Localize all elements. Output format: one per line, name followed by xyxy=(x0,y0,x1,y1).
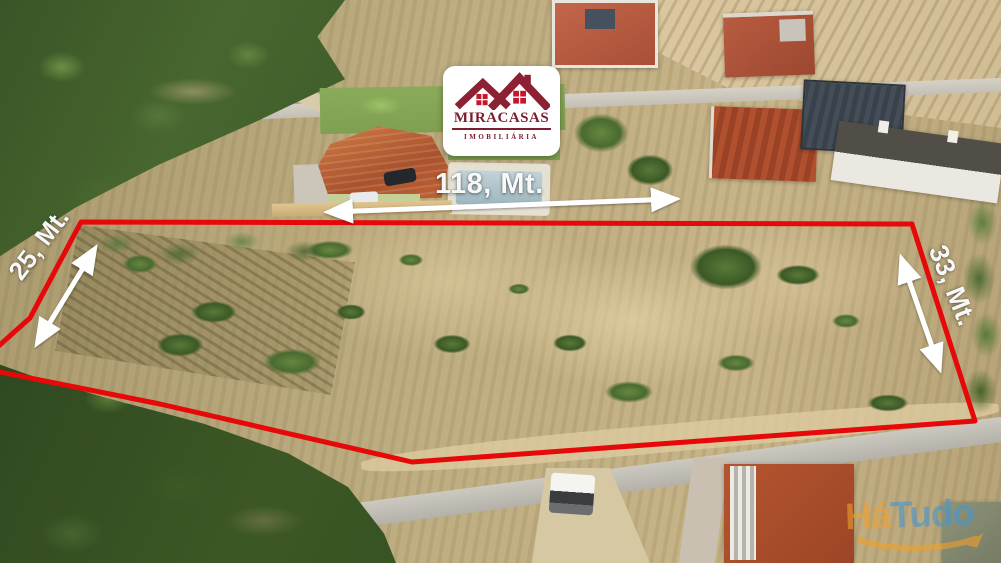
villa-house xyxy=(317,124,450,202)
bush xyxy=(428,332,476,356)
bush xyxy=(712,352,760,374)
house xyxy=(552,0,658,68)
bush xyxy=(395,252,427,268)
bush xyxy=(770,262,826,288)
house xyxy=(831,121,1001,204)
bush xyxy=(548,332,592,354)
hedge-row xyxy=(92,224,342,274)
logo-subtitle: IMOBILIÁRIA xyxy=(464,133,539,141)
twin-house-roofs-icon xyxy=(454,70,550,110)
house xyxy=(723,10,815,77)
bush xyxy=(332,302,370,322)
white-van xyxy=(549,473,596,516)
bush xyxy=(150,330,210,360)
watermark-text-ha: Há xyxy=(844,495,891,538)
bush xyxy=(505,282,533,296)
miracasas-logo: MIRACASAS IMOBILIÁRIA xyxy=(443,66,560,156)
bush xyxy=(620,150,680,190)
bush xyxy=(598,378,660,406)
measurement-label-top: 118, Mt. xyxy=(435,168,544,201)
watermark-text-tudo: Tudo xyxy=(890,492,975,536)
logo-title: MIRACASAS xyxy=(452,110,551,130)
hatudo-watermark: HáTudo xyxy=(844,494,974,535)
bush xyxy=(828,312,864,330)
bush xyxy=(862,392,914,414)
swoosh-arrow-icon xyxy=(856,529,992,558)
house xyxy=(724,464,854,563)
bush xyxy=(680,238,772,296)
boundary-wall xyxy=(272,200,452,217)
bush xyxy=(255,345,329,379)
bush xyxy=(185,298,243,326)
aerial-photo: 118, Mt. 25, Mt. 33, Mt. MIRACASAS IMOBI… xyxy=(0,0,1001,563)
bush xyxy=(566,108,636,158)
